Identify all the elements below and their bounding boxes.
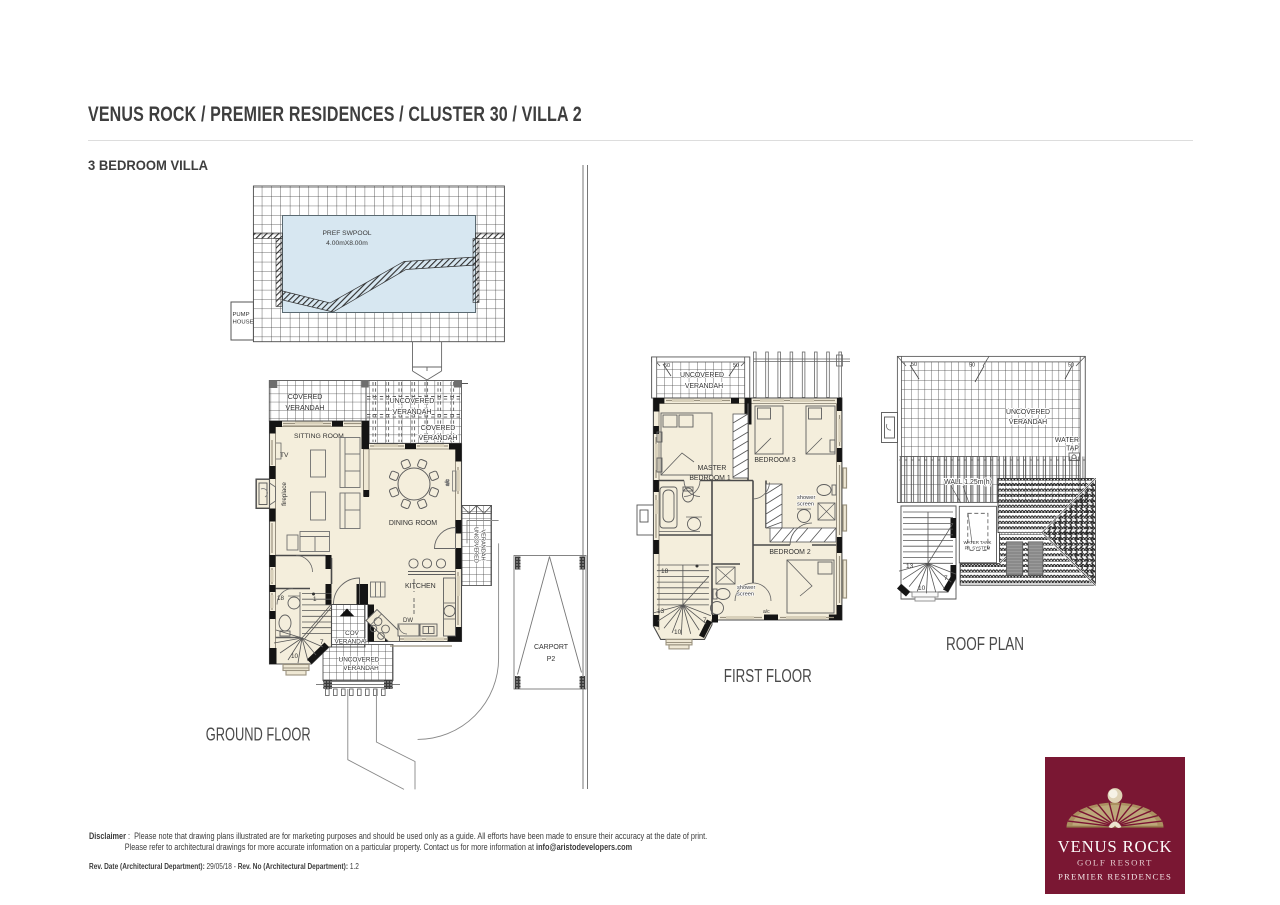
svg-text:13: 13 [657, 608, 665, 615]
svg-text:P2: P2 [547, 656, 556, 663]
svg-text:7: 7 [944, 575, 948, 582]
svg-text:WALL 1.25m(h): WALL 1.25m(h) [944, 479, 992, 486]
svg-text:VERANDAH: VERANDAH [286, 405, 325, 412]
svg-text:50: 50 [969, 363, 975, 369]
svg-text:ROOF PLAN: ROOF PLAN [946, 634, 1024, 654]
svg-text:VERANDAH: VERANDAH [419, 435, 458, 442]
svg-text:COVERED: COVERED [288, 394, 323, 401]
svg-text:WATER: WATER [1055, 437, 1079, 444]
svg-text:screen: screen [737, 592, 754, 598]
svg-text:BEDROOM 1: BEDROOM 1 [689, 475, 731, 482]
svg-text:UNCOVERED: UNCOVERED [390, 398, 435, 405]
svg-text:VERANDAH: VERANDAH [1009, 419, 1047, 426]
svg-text:1: 1 [313, 596, 317, 603]
svg-text:50: 50 [664, 363, 670, 369]
svg-text:GROUND FLOOR: GROUND FLOOR [206, 725, 311, 745]
svg-text:a/c: a/c [445, 479, 451, 486]
svg-text:VERANDAH: VERANDAH [685, 383, 723, 390]
svg-text:VERANDAH: VERANDAH [393, 409, 432, 416]
svg-text:PREMIER RESIDENCES: PREMIER RESIDENCES [1058, 872, 1172, 882]
svg-text:PREF SWPOOL: PREF SWPOOL [322, 230, 371, 237]
svg-text:shower: shower [737, 585, 755, 591]
svg-text:50: 50 [911, 362, 917, 368]
svg-text:18: 18 [277, 595, 285, 602]
svg-text:UNCOVERED: UNCOVERED [339, 657, 380, 664]
svg-text:13: 13 [906, 563, 914, 570]
svg-text:DW: DW [403, 618, 413, 624]
svg-text:WATER TANK: WATER TANK [964, 540, 992, 545]
svg-text:CARPORT: CARPORT [534, 644, 569, 651]
svg-text:COV: COV [345, 630, 359, 637]
svg-text:VENUS ROCK: VENUS ROCK [1058, 837, 1173, 856]
svg-text:10: 10 [918, 585, 926, 592]
svg-text:GOLF RESORT: GOLF RESORT [1077, 858, 1153, 868]
svg-text:BEDROOM 3: BEDROOM 3 [754, 457, 796, 464]
svg-text:P/L SYSTEM: P/L SYSTEM [965, 546, 991, 551]
svg-text:fireplace: fireplace [281, 482, 288, 506]
svg-text:7: 7 [320, 639, 324, 646]
svg-text:DINING ROOM: DINING ROOM [389, 520, 437, 527]
svg-text:TAP: TAP [1066, 446, 1079, 453]
svg-text:SITTING ROOM: SITTING ROOM [294, 433, 344, 440]
svg-text:HOUSE: HOUSE [233, 320, 254, 326]
svg-text:a/c: a/c [763, 609, 770, 615]
svg-text:UNCOVERED: UNCOVERED [1006, 409, 1050, 416]
svg-text:UNCOVERED: UNCOVERED [680, 372, 724, 379]
svg-text:MASTER: MASTER [698, 465, 727, 472]
svg-text:KITCHEN: KITCHEN [405, 583, 436, 590]
svg-text:7: 7 [703, 617, 707, 624]
svg-text:FIRST FLOOR: FIRST FLOOR [724, 666, 812, 686]
svg-text:VERANDAH: VERANDAH [343, 665, 379, 672]
svg-text:UNCOVERED: UNCOVERED [473, 527, 479, 563]
svg-text:COVERED: COVERED [421, 425, 456, 432]
svg-text:10: 10 [674, 629, 682, 636]
svg-text:4.00mX8.00m: 4.00mX8.00m [326, 240, 368, 247]
svg-text:screen: screen [797, 502, 814, 508]
svg-text:PUMP: PUMP [233, 312, 250, 318]
svg-text:shower: shower [797, 495, 815, 501]
svg-text:VERANDAH: VERANDAH [480, 529, 486, 560]
svg-text:18: 18 [661, 568, 669, 575]
svg-text:BEDROOM 2: BEDROOM 2 [769, 549, 811, 556]
svg-text:10: 10 [291, 653, 299, 660]
